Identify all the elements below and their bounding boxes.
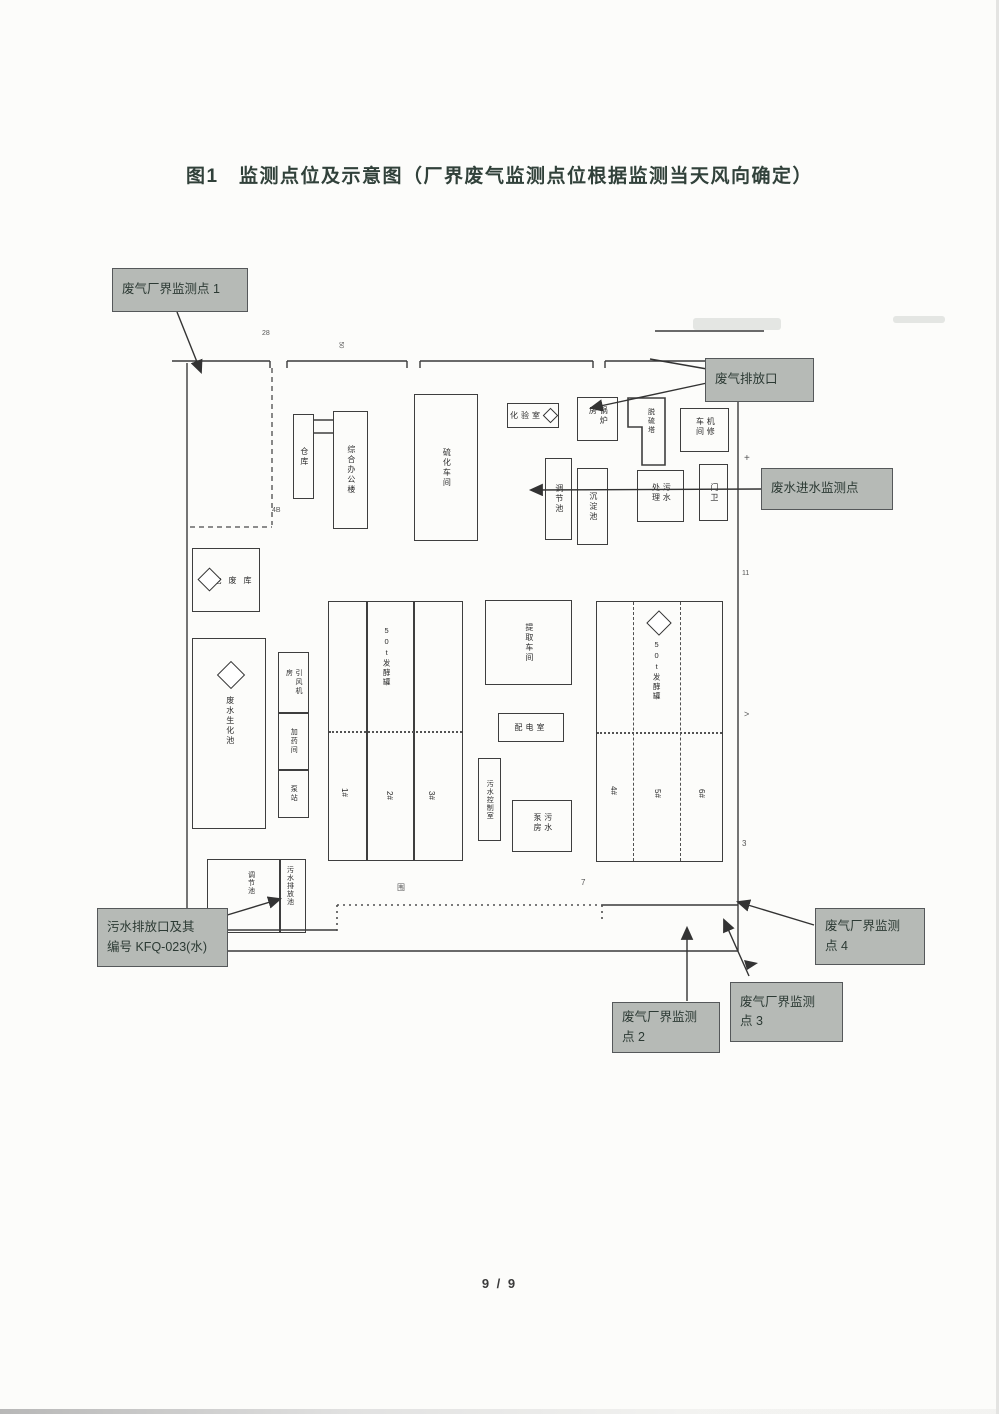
building-control-room-label: 污水控制室: [485, 780, 494, 820]
building-maintenance: 机修车间: [680, 408, 729, 452]
boundary-mark: 围: [397, 882, 405, 893]
boundary-mark: 50: [337, 342, 343, 349]
building-sewage-treatment-label: 污水处理: [650, 483, 672, 510]
building-regulating-tank-label: 调节池: [553, 484, 564, 514]
line-gas-outlet: [650, 359, 707, 369]
building-desulfurization-tower: 脱硫塔: [628, 398, 668, 468]
building-boiler-label: 锅炉房: [587, 406, 609, 433]
callout-point1: 废气厂界监测点 1: [112, 268, 248, 312]
scan-edge-shadow: [0, 1409, 999, 1414]
building-pump-station: 泵站: [278, 770, 309, 818]
callout-wastewater-inlet-text: 废水进水监测点: [771, 479, 883, 498]
building-sewage-treatment: 污水处理: [637, 470, 684, 522]
boundary-mark: 4B: [272, 507, 281, 514]
figure-title: 图1 监测点位及示意图（厂界废气监测点位根据监测当天风向确定）: [0, 161, 999, 188]
building-maintenance-label: 机修车间: [694, 417, 716, 444]
callout-point4-line1: 废气厂界监测: [825, 917, 915, 936]
building-biochemical-tank-label: 废水生化池: [224, 696, 235, 746]
diamond-marker-icon: [543, 408, 559, 424]
building-gatehouse: 门卫: [699, 464, 728, 521]
callout-gas-outlet: 废气排放口: [705, 358, 814, 402]
building-hazardous-waste: 危废库: [192, 548, 260, 612]
building-desulfurization-tower-label: 脱硫塔: [646, 408, 655, 435]
diamond-marker-icon: [197, 567, 221, 591]
building-extraction-workshop-label: 提取车间: [523, 623, 534, 663]
arrow-point4: [738, 902, 814, 925]
building-control-room: 污水控制室: [478, 758, 501, 841]
tank-number: 2#: [385, 791, 394, 800]
callout-gas-outlet-text: 废气排放口: [715, 370, 804, 389]
building-office: 综合办公楼: [333, 411, 368, 529]
scan-smudge: [693, 318, 781, 330]
callout-point4-line2: 点 4: [825, 937, 915, 956]
boundary-mark: 28: [262, 330, 270, 337]
building-pump-station-label: 泵站: [289, 785, 298, 803]
arrow-point3: [724, 920, 749, 976]
building-lab-label: 化验室: [510, 410, 543, 421]
building-fermentation-block-right: 50t发酵罐 4# 5# 6#: [596, 601, 723, 862]
building-sedimentation-tank: 沉淀池: [577, 468, 608, 545]
callout-wastewater-inlet: 废水进水监测点: [761, 468, 893, 510]
building-regulating-tank: 调节池: [545, 458, 572, 540]
building-power-room: 配电室: [498, 713, 564, 742]
pond-left-label: 调节池: [246, 871, 255, 895]
corridor-link: [314, 420, 333, 433]
callout-sewage-outlet: 污水排放口及其 编号 KFQ-023(水): [97, 908, 228, 967]
fermenter-label: 50t发酵罐: [381, 626, 391, 688]
building-dosing-room-label: 加药间: [289, 728, 298, 755]
callout-point3-line2: 点 3: [740, 1012, 833, 1031]
building-power-room-label: 配电室: [515, 722, 548, 733]
boundary-mark: >: [744, 709, 749, 719]
building-extraction-workshop: 提取车间: [485, 600, 572, 685]
scan-smudge: [893, 316, 945, 323]
tank-number: 5#: [653, 789, 662, 798]
block-divider: [279, 860, 281, 932]
small-triangle-mark: [744, 960, 758, 970]
tank-number: 3#: [427, 791, 436, 800]
dotted-line: [329, 731, 462, 733]
callout-point3-line1: 废气厂界监测: [740, 993, 833, 1012]
building-sewage-pump-room: 污水泵房: [512, 800, 572, 852]
callout-point2-line1: 废气厂界监测: [622, 1008, 710, 1027]
callout-sewage-outlet-line1: 污水排放口及其: [107, 918, 218, 937]
diamond-marker-icon: [217, 661, 245, 689]
pond-right-label: 污水排放池: [285, 866, 294, 906]
building-fan-room-label: 引风机房: [284, 669, 303, 696]
building-biochemical-tank: 废水生化池: [192, 638, 266, 829]
building-warehouse: 仓库: [293, 414, 314, 499]
tank-number: 6#: [697, 789, 706, 798]
building-sewage-pump-room-label: 污水泵房: [531, 813, 553, 840]
building-lab: 化验室: [507, 403, 559, 428]
building-vulcanization-workshop-label: 硫化车间: [441, 448, 452, 488]
callout-point1-text: 废气厂界监测点 1: [122, 280, 238, 299]
callout-sewage-outlet-line2: 编号 KFQ-023(水): [107, 938, 218, 957]
callout-point2-line2: 点 2: [622, 1028, 710, 1047]
building-boiler: 锅炉房: [577, 397, 618, 441]
building-fermentation-block-left: 50t发酵罐 1# 2# 3#: [328, 601, 463, 861]
building-office-label: 综合办公楼: [345, 445, 356, 495]
boundary-mark: +: [744, 453, 750, 464]
building-warehouse-label: 仓库: [298, 447, 309, 467]
building-sedimentation-tank-label: 沉淀池: [587, 492, 598, 522]
boundary-mark: 7: [581, 878, 585, 887]
callout-point2: 废气厂界监测 点 2: [612, 1002, 720, 1053]
scanned-document-page: 图1 监测点位及示意图（厂界废气监测点位根据监测当天风向确定） 仓库 综合办公楼…: [0, 0, 999, 1414]
building-fan-room: 引风机房: [278, 652, 309, 713]
building-dosing-room: 加药间: [278, 713, 309, 770]
building-vulcanization-workshop: 硫化车间: [414, 394, 478, 541]
callout-point3: 废气厂界监测 点 3: [730, 982, 843, 1042]
arrow-point1: [177, 312, 201, 372]
tank-number: 1#: [340, 788, 349, 797]
fermenter-label: 50t发酵罐: [651, 640, 661, 702]
diamond-marker-icon: [646, 610, 671, 635]
dashed-boundary: [190, 368, 272, 527]
page-number: 9 / 9: [0, 1276, 999, 1291]
boundary-mark: 11: [742, 570, 749, 577]
callout-point4: 废气厂界监测 点 4: [815, 908, 925, 965]
building-gatehouse-label: 门卫: [708, 483, 719, 503]
tank-number: 4#: [609, 786, 618, 795]
dotted-line: [597, 732, 722, 734]
boundary-mark: 3: [742, 839, 746, 848]
dotted-boundary: [337, 905, 602, 931]
diagram-linework: [0, 0, 999, 1414]
